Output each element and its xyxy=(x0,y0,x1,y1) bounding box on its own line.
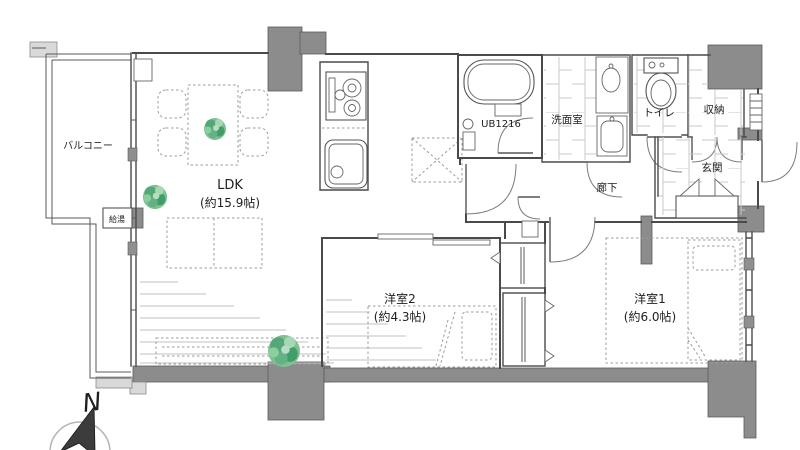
chair xyxy=(240,90,268,118)
toilet-label: トイレ xyxy=(643,107,675,119)
water-heater: 給湯 xyxy=(103,208,132,228)
washroom-label: 洗面室 xyxy=(551,113,583,126)
unit-bath: UB1216 xyxy=(458,55,542,158)
balcony-label: バルコニー xyxy=(63,140,113,152)
sliding-door xyxy=(378,234,490,245)
floor-plan: バルコニー LDK (約15.9帖) xyxy=(0,0,800,450)
room-bedroom1: 洋室1 (約6.0帖) xyxy=(606,238,742,363)
chair xyxy=(158,90,186,118)
water-heater-label: 給湯 xyxy=(109,214,125,224)
bathtub xyxy=(464,60,534,116)
tree-icon xyxy=(268,335,300,367)
storage-label: 収納 xyxy=(704,103,725,116)
bath-counter xyxy=(463,132,475,150)
door-pocket xyxy=(522,221,538,237)
ldk-label: LDK xyxy=(217,178,243,193)
sink xyxy=(325,140,367,188)
bedroom1-rug xyxy=(606,238,742,363)
bedroom2-label: 洋室2 xyxy=(384,291,416,306)
chair xyxy=(240,128,268,156)
entrance: 玄関 xyxy=(655,137,797,218)
sofa-table xyxy=(167,218,262,268)
washroom: 洗面室 xyxy=(542,55,630,197)
ldk-size-label: (約15.9帖) xyxy=(200,195,260,210)
bath-label: UB1216 xyxy=(481,119,521,130)
bath-faucet-icon xyxy=(463,119,473,129)
compass-label: N xyxy=(81,387,104,418)
washing-machine xyxy=(597,116,627,156)
hallway-label: 廊下 xyxy=(597,181,618,194)
louver-window xyxy=(750,94,762,130)
bed xyxy=(688,240,740,360)
refrigerator xyxy=(412,138,462,182)
toilet-fixture xyxy=(644,58,678,109)
chair xyxy=(158,128,186,156)
compass: N xyxy=(50,387,110,450)
entrance-label: 玄関 xyxy=(702,161,723,174)
tree-icon xyxy=(204,118,226,140)
stove xyxy=(326,72,366,120)
bedroom1-size-label: (約6.0帖) xyxy=(624,309,676,324)
washbasin xyxy=(596,57,628,113)
bedroom2-size-label: (約4.3帖) xyxy=(374,309,426,324)
bedroom1-label: 洋室1 xyxy=(634,291,666,306)
tree-icon xyxy=(143,185,167,209)
kitchen xyxy=(320,62,462,190)
room-bedroom2: 洋室2 (約4.3帖) xyxy=(322,234,500,368)
